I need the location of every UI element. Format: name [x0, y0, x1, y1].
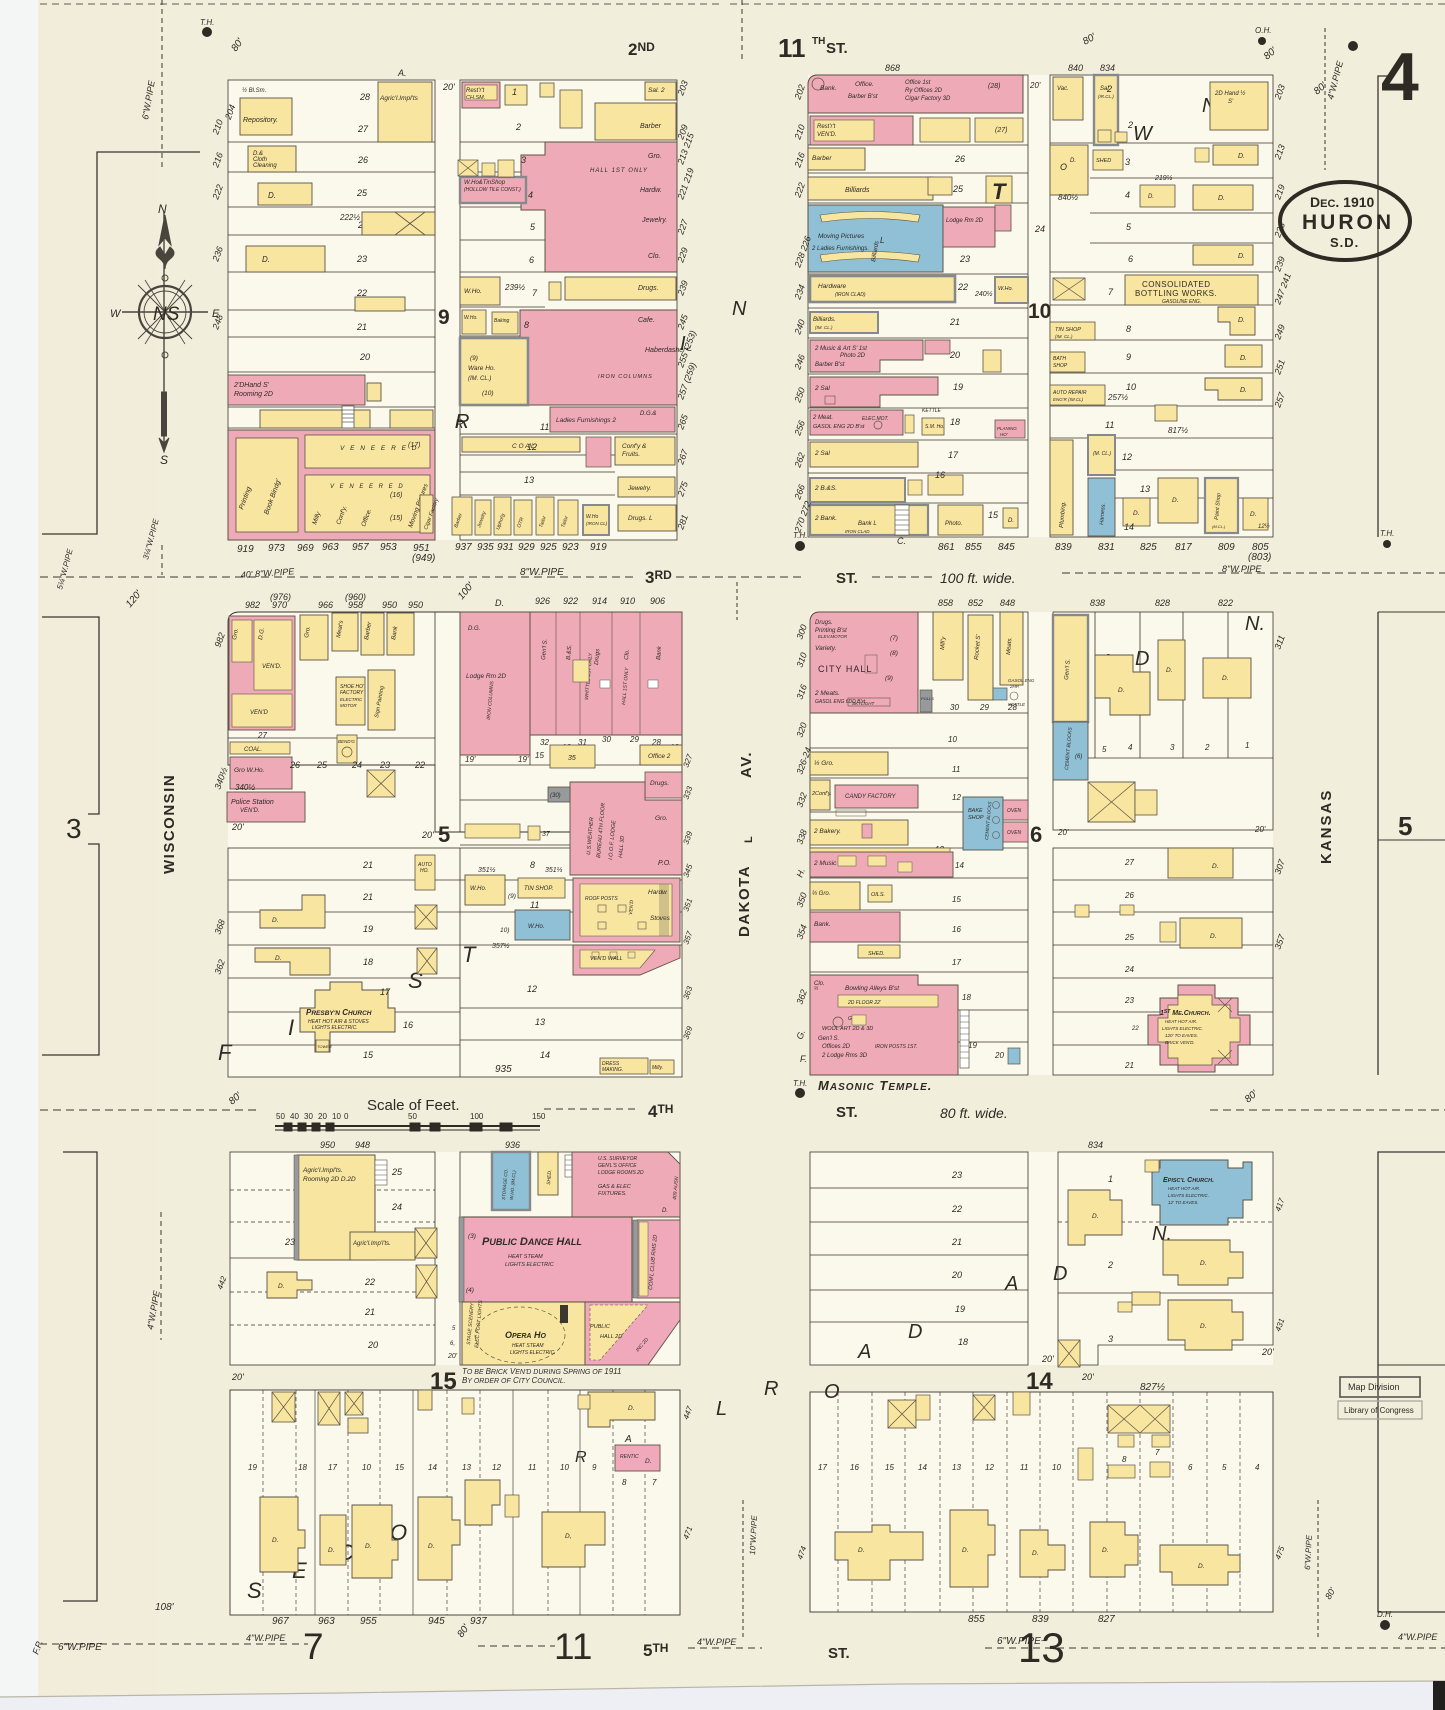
svg-text:MAKING.: MAKING. — [602, 1067, 623, 1073]
svg-text:240½: 240½ — [974, 290, 993, 298]
svg-text:ELEV.MOTOR: ELEV.MOTOR — [818, 634, 848, 639]
svg-text:25: 25 — [316, 760, 328, 770]
svg-text:S.D.: S.D. — [1330, 235, 1359, 250]
svg-text:2 Music & Art S' 1st: 2 Music & Art S' 1st — [814, 346, 867, 352]
svg-text:357½: 357½ — [492, 942, 510, 950]
svg-text:(9): (9) — [508, 893, 516, 900]
svg-text:D.: D. — [1032, 1550, 1039, 1557]
svg-text:8: 8 — [524, 320, 529, 330]
svg-text:D.: D. — [275, 955, 282, 962]
svg-text:13: 13 — [462, 1463, 471, 1472]
svg-text:20': 20' — [421, 830, 434, 840]
svg-text:GAS & ELEC: GAS & ELEC — [598, 1184, 631, 1190]
svg-text:21: 21 — [1124, 1061, 1134, 1070]
svg-text:20': 20' — [1029, 81, 1041, 90]
svg-text:868: 868 — [885, 63, 900, 73]
svg-text:340½: 340½ — [235, 783, 255, 792]
svg-text:25: 25 — [1124, 933, 1134, 942]
svg-text:855: 855 — [965, 542, 982, 553]
svg-text:V E N E E R E D: V E N E E R E D — [340, 445, 418, 452]
svg-text:2 Lodge Rms 3D: 2 Lodge Rms 3D — [821, 1053, 868, 1059]
svg-text:TH: TH — [812, 36, 825, 47]
svg-text:16: 16 — [935, 470, 945, 480]
svg-text:950: 950 — [320, 1140, 335, 1150]
svg-text:Rooming 2D D.2D: Rooming 2D D.2D — [303, 1176, 356, 1183]
svg-text:ENG'R (IM.CL): ENG'R (IM.CL) — [1053, 397, 1084, 402]
svg-text:Bank L: Bank L — [858, 521, 877, 527]
svg-text:D.: D. — [428, 1543, 435, 1550]
svg-text:P.O.: P.O. — [658, 860, 671, 867]
svg-text:(27): (27) — [995, 127, 1007, 134]
svg-text:D.: D. — [662, 1208, 668, 1214]
svg-text:O: O — [1060, 162, 1067, 172]
svg-text:(9): (9) — [885, 675, 893, 682]
svg-text:16: 16 — [850, 1463, 859, 1472]
svg-text:13: 13 — [535, 1017, 545, 1027]
svg-text:14: 14 — [955, 861, 964, 870]
svg-text:Barber: Barber — [812, 155, 832, 162]
svg-text:Bank.: Bank. — [814, 921, 831, 928]
svg-text:831: 831 — [1098, 542, 1115, 553]
svg-text:Repository.: Repository. — [243, 117, 278, 124]
svg-text:R: R — [455, 417, 464, 431]
svg-text:W.Ho.: W.Ho. — [470, 886, 486, 892]
svg-text:936: 936 — [505, 1140, 520, 1150]
svg-text:21: 21 — [364, 1307, 375, 1317]
svg-text:Hardware: Hardware — [818, 283, 847, 290]
svg-text:950: 950 — [382, 600, 397, 610]
svg-text:10: 10 — [1126, 382, 1136, 392]
svg-text:(10): (10) — [482, 390, 494, 397]
svg-text:⅓ Gro.: ⅓ Gro. — [814, 760, 834, 767]
svg-text:840: 840 — [1068, 63, 1083, 73]
svg-text:D.G.&: D.G.& — [640, 411, 656, 417]
svg-text:28: 28 — [359, 92, 370, 102]
svg-text:SHED.: SHED. — [868, 951, 885, 957]
svg-text:22: 22 — [957, 282, 968, 292]
svg-text:2 Sal: 2 Sal — [814, 385, 830, 392]
svg-text:10: 10 — [1052, 1463, 1061, 1472]
svg-text:(M.CL.): (M.CL.) — [1212, 524, 1226, 529]
svg-text:834: 834 — [1088, 1140, 1103, 1150]
svg-text:D.H.: D.H. — [1377, 1610, 1393, 1619]
svg-text:Drugs.: Drugs. — [650, 780, 669, 787]
svg-text:Drugs.: Drugs. — [815, 620, 833, 626]
svg-text:Jewelry.: Jewelry. — [627, 485, 652, 492]
svg-text:2'DHand S': 2'DHand S' — [233, 382, 270, 389]
svg-text:12: 12 — [527, 984, 537, 994]
svg-text:858: 858 — [938, 598, 953, 608]
svg-text:W.Ho.: W.Ho. — [528, 924, 544, 930]
svg-text:Ware Ho.: Ware Ho. — [468, 365, 496, 372]
svg-text:TOWER: TOWER — [317, 1044, 332, 1049]
svg-text:14: 14 — [428, 1463, 437, 1472]
svg-text:973: 973 — [268, 543, 285, 554]
svg-text:(3): (3) — [468, 1233, 476, 1240]
svg-text:N.: N. — [1245, 613, 1265, 635]
svg-text:SHOP: SHOP — [968, 815, 984, 821]
svg-text:25: 25 — [391, 1167, 403, 1177]
svg-text:969: 969 — [297, 543, 314, 554]
svg-text:18: 18 — [950, 417, 960, 427]
svg-text:W.Ho: W.Ho — [586, 514, 599, 520]
svg-text:DAKOTA: DAKOTA — [736, 865, 753, 937]
svg-text:931: 931 — [497, 542, 514, 553]
svg-text:11: 11 — [554, 1626, 592, 1667]
svg-text:D.: D. — [1218, 195, 1225, 202]
svg-text:21: 21 — [949, 317, 960, 327]
svg-text:10: 10 — [560, 1463, 569, 1472]
svg-text:C.: C. — [897, 536, 906, 546]
svg-text:257½: 257½ — [1107, 393, 1128, 402]
svg-text:1: 1 — [1108, 1174, 1113, 1184]
svg-text:D.: D. — [858, 1547, 865, 1554]
svg-text:D.: D. — [1070, 158, 1076, 164]
svg-text:18: 18 — [298, 1463, 307, 1472]
svg-text:D.: D. — [1102, 1547, 1109, 1554]
svg-text:(M. CL.): (M. CL.) — [1093, 451, 1111, 457]
svg-text:19': 19' — [465, 755, 476, 764]
svg-text:4"W.PIPE: 4"W.PIPE — [1398, 1632, 1438, 1642]
svg-text:BATH: BATH — [1053, 356, 1066, 362]
svg-text:17: 17 — [380, 987, 391, 997]
svg-text:12½: 12½ — [1258, 523, 1270, 530]
svg-text:20': 20' — [1261, 1347, 1274, 1357]
svg-text:23: 23 — [284, 1237, 295, 1247]
svg-text:T: T — [992, 179, 1007, 204]
svg-text:23: 23 — [1124, 996, 1134, 1005]
svg-text:Agric'l.Impl'ts.: Agric'l.Impl'ts. — [302, 1167, 343, 1174]
svg-text:D.: D. — [1212, 863, 1219, 870]
svg-text:HALL 2D: HALL 2D — [600, 1334, 622, 1340]
svg-text:Cigar Factory 3D: Cigar Factory 3D — [905, 96, 951, 102]
svg-text:D.: D. — [962, 1547, 969, 1554]
svg-text:948: 948 — [355, 1140, 370, 1150]
svg-text:9: 9 — [1126, 352, 1131, 362]
svg-text:SKYLIGHT: SKYLIGHT — [852, 701, 876, 706]
svg-text:(16): (16) — [390, 492, 402, 499]
svg-text:923: 923 — [562, 542, 579, 553]
svg-text:817: 817 — [1175, 542, 1192, 553]
svg-text:6: 6 — [529, 255, 534, 265]
svg-text:TIN SHOP: TIN SHOP — [1055, 327, 1081, 333]
svg-text:21: 21 — [362, 860, 373, 870]
svg-text:(8): (8) — [890, 650, 898, 657]
svg-text:937: 937 — [470, 1616, 487, 1627]
svg-text:Gro.: Gro. — [655, 815, 668, 822]
svg-text:D.: D. — [272, 917, 279, 924]
svg-text:11: 11 — [528, 1463, 536, 1472]
svg-text:17: 17 — [952, 958, 961, 967]
svg-text:1: 1 — [1245, 741, 1249, 750]
svg-text:929: 929 — [518, 542, 535, 553]
svg-text:19: 19 — [968, 1041, 977, 1050]
svg-text:(IR.CL.): (IR.CL.) — [1098, 94, 1114, 99]
svg-text:SHOP: SHOP — [1053, 363, 1068, 369]
svg-text:I: I — [288, 1015, 294, 1040]
svg-text:SHED: SHED — [1096, 158, 1111, 164]
svg-text:AV.: AV. — [738, 751, 755, 778]
svg-text:2HP.: 2HP. — [1009, 684, 1019, 689]
svg-text:2D Hand ½: 2D Hand ½ — [1214, 90, 1245, 97]
svg-text:2D FLOOR 22': 2D FLOOR 22' — [847, 1000, 882, 1006]
svg-text:S: S — [160, 453, 168, 467]
svg-text:Gen'l S.: Gen'l S. — [818, 1036, 839, 1042]
svg-text:TIN SHOP.: TIN SHOP. — [524, 886, 553, 892]
svg-text:OVEN: OVEN — [1007, 830, 1022, 836]
svg-text:D.: D. — [1148, 194, 1154, 200]
svg-text:19: 19 — [363, 924, 373, 934]
svg-text:D.: D. — [495, 598, 504, 608]
svg-text:Fruits.: Fruits. — [622, 451, 640, 458]
svg-text:(803): (803) — [1248, 552, 1271, 563]
svg-text:967: 967 — [272, 1616, 289, 1627]
svg-text:14: 14 — [540, 1050, 550, 1060]
svg-text:ST.: ST. — [828, 1645, 850, 1662]
svg-text:919: 919 — [590, 542, 607, 553]
svg-text:845: 845 — [998, 542, 1015, 553]
svg-text:8: 8 — [1122, 1455, 1127, 1464]
svg-text:VEN'D WALL: VEN'D WALL — [590, 956, 623, 962]
svg-text:(IM. CL.): (IM. CL.) — [1055, 334, 1073, 339]
svg-text:919: 919 — [237, 544, 254, 555]
svg-text:Barber B'st: Barber B'st — [848, 94, 878, 100]
svg-text:7: 7 — [1155, 1448, 1160, 1457]
svg-text:KANSAS: KANSAS — [1318, 789, 1335, 864]
svg-text:T.H.: T.H. — [200, 18, 214, 27]
svg-text:D: D — [1135, 648, 1149, 670]
svg-text:(30): (30) — [550, 793, 561, 799]
svg-text:2: 2 — [1204, 743, 1210, 752]
svg-text:A: A — [857, 1341, 871, 1363]
svg-text:FIXTURES.: FIXTURES. — [598, 1191, 627, 1197]
svg-text:D.: D. — [1222, 675, 1229, 682]
svg-text:4"W.PIPE: 4"W.PIPE — [246, 1633, 286, 1643]
svg-text:T.H.: T.H. — [1380, 529, 1394, 538]
svg-text:24: 24 — [391, 1202, 402, 1212]
svg-text:23: 23 — [959, 254, 970, 264]
svg-text:Agric'l.Imp'l'ts.: Agric'l.Imp'l'ts. — [352, 1241, 391, 1247]
svg-text:Office.: Office. — [855, 81, 874, 88]
svg-text:D.: D. — [1238, 317, 1245, 324]
svg-text:20': 20' — [1041, 1354, 1054, 1364]
svg-text:N: N — [158, 202, 167, 216]
svg-text:14: 14 — [918, 1463, 927, 1472]
svg-text:BOTTLING WORKS.: BOTTLING WORKS. — [1135, 289, 1217, 298]
svg-text:Stoves: Stoves — [650, 915, 671, 922]
svg-text:W: W — [1133, 123, 1154, 145]
svg-text:13: 13 — [524, 475, 534, 485]
svg-text:15: 15 — [363, 1050, 374, 1060]
svg-text:20': 20' — [1254, 825, 1266, 834]
svg-text:A: A — [1004, 1273, 1018, 1295]
svg-text:Rest'r't: Rest'r't — [466, 88, 485, 94]
svg-text:9: 9 — [438, 306, 450, 329]
svg-text:T: T — [462, 942, 477, 967]
svg-text:120' TO EAVES.: 120' TO EAVES. — [1165, 1033, 1198, 1038]
svg-text:D.: D. — [1008, 518, 1014, 524]
svg-text:3: 3 — [1125, 157, 1130, 167]
svg-text:848: 848 — [1000, 598, 1015, 608]
svg-text:22: 22 — [951, 1204, 962, 1214]
svg-text:239½: 239½ — [504, 283, 525, 292]
svg-text:(IRON CLAD): (IRON CLAD) — [835, 292, 866, 298]
svg-text:HO.: HO. — [420, 868, 429, 874]
svg-text:5: 5 — [438, 822, 450, 847]
svg-text:21: 21 — [951, 1237, 962, 1247]
svg-text:22: 22 — [414, 760, 425, 770]
svg-text:CITY HALL: CITY HALL — [818, 664, 872, 674]
svg-text:0: 0 — [344, 1112, 349, 1121]
svg-text:W.Ho&TinShop: W.Ho&TinShop — [464, 180, 506, 186]
svg-text:13: 13 — [952, 1463, 961, 1472]
svg-text:O.H.: O.H. — [1255, 26, 1271, 35]
svg-text:855: 855 — [968, 1614, 985, 1625]
svg-text:5: 5 — [1222, 1463, 1227, 1472]
svg-text:19: 19 — [248, 1463, 257, 1472]
svg-text:Billiards: Billiards — [845, 187, 870, 194]
svg-text:2 Sal: 2 Sal — [814, 450, 830, 457]
svg-text:D.: D. — [645, 1458, 652, 1465]
svg-text:11: 11 — [1020, 1463, 1028, 1472]
svg-text:Gro W.Ho.: Gro W.Ho. — [234, 767, 265, 774]
svg-text:BY ORDER OF CITY COUNCIL.: BY ORDER OF CITY COUNCIL. — [462, 1376, 566, 1385]
svg-text:1: 1 — [512, 87, 517, 97]
svg-text:D.: D. — [328, 1547, 335, 1554]
svg-text:CANDY FACTORY: CANDY FACTORY — [845, 794, 896, 800]
svg-text:23: 23 — [379, 760, 390, 770]
svg-text:D.: D. — [1240, 355, 1247, 362]
svg-text:ST.: ST. — [836, 570, 858, 587]
svg-text:BAKE: BAKE — [968, 808, 983, 814]
svg-text:OILS.: OILS. — [871, 892, 885, 898]
svg-text:R: R — [764, 1378, 778, 1400]
svg-text:D.: D. — [278, 1283, 285, 1290]
svg-text:150: 150 — [532, 1112, 546, 1121]
svg-text:(28): (28) — [988, 83, 1000, 90]
svg-text:22: 22 — [364, 1277, 375, 1287]
svg-text:27: 27 — [357, 124, 369, 134]
svg-text:19': 19' — [518, 755, 529, 764]
svg-text:2 B.&S.: 2 B.&S. — [814, 485, 837, 492]
svg-text:219½: 219½ — [1154, 174, 1173, 182]
svg-text:8: 8 — [1126, 324, 1131, 334]
svg-text:LIGHTS ELECTRIC.: LIGHTS ELECTRIC. — [510, 1350, 556, 1356]
svg-text:W.Ho.: W.Ho. — [464, 288, 482, 295]
svg-text:7: 7 — [652, 1478, 657, 1487]
svg-text:LIGHTS ELECTRIC.: LIGHTS ELECTRIC. — [312, 1025, 358, 1031]
svg-text:Rooming 2D: Rooming 2D — [234, 391, 273, 398]
svg-text:COAL.: COAL. — [244, 747, 262, 753]
svg-text:Cafe.: Cafe. — [638, 317, 655, 324]
svg-text:W: W — [110, 308, 122, 320]
svg-text:Drugs. L: Drugs. L — [628, 515, 653, 522]
svg-text:8"W.PIPE: 8"W.PIPE — [1222, 564, 1262, 574]
svg-text:827½: 827½ — [1140, 1382, 1166, 1393]
svg-text:6: 6 — [1030, 822, 1042, 847]
svg-text:F: F — [218, 1040, 233, 1065]
svg-text:Billiards.: Billiards. — [813, 317, 836, 323]
svg-text:10: 10 — [362, 1463, 371, 1472]
svg-text:10: 10 — [948, 735, 957, 744]
svg-text:6"W.PIPE: 6"W.PIPE — [1303, 1534, 1314, 1570]
svg-text:VEN'D.: VEN'D. — [262, 664, 281, 670]
svg-text:N: N — [732, 298, 747, 320]
svg-text:Clo.: Clo. — [624, 649, 631, 660]
svg-text:S: S — [247, 1578, 262, 1603]
svg-text:817½: 817½ — [1168, 426, 1188, 435]
svg-text:VEN'D: VEN'D — [250, 710, 268, 716]
svg-text:19: 19 — [955, 1304, 965, 1314]
svg-text:25: 25 — [952, 184, 964, 194]
svg-text:24: 24 — [351, 760, 362, 770]
svg-text:W.Ho.: W.Ho. — [464, 315, 478, 321]
svg-text:958: 958 — [348, 600, 363, 610]
svg-text:2 Bakery.: 2 Bakery. — [813, 828, 841, 835]
svg-text:825: 825 — [1140, 542, 1157, 553]
svg-text:2 Meat.: 2 Meat. — [812, 415, 833, 421]
svg-text:20': 20' — [447, 1353, 458, 1360]
svg-text:809: 809 — [1218, 542, 1235, 553]
svg-text:827: 827 — [1098, 1614, 1115, 1625]
svg-text:3: 3 — [521, 155, 526, 165]
svg-text:Cleaning: Cleaning — [253, 163, 277, 169]
svg-text:10: 10 — [332, 1112, 341, 1121]
svg-text:6,: 6, — [450, 1341, 455, 1347]
svg-text:30: 30 — [304, 1112, 313, 1121]
svg-text:D.: D. — [1240, 387, 1247, 394]
svg-text:D.: D. — [1210, 933, 1217, 940]
svg-text:8"W.PIPE: 8"W.PIPE — [520, 567, 564, 578]
svg-text:LIGHTS ELECTRIC.: LIGHTS ELECTRIC. — [1168, 1193, 1209, 1198]
svg-text:15: 15 — [988, 510, 999, 520]
svg-text:Moving Pictures: Moving Pictures — [818, 233, 865, 240]
svg-text:8: 8 — [530, 860, 535, 870]
svg-text:100 ft. wide.: 100 ft. wide. — [940, 570, 1016, 586]
svg-text:ROOF POSTS: ROOF POSTS — [585, 896, 618, 902]
svg-text:222½: 222½ — [339, 213, 360, 222]
svg-text:5: 5 — [1398, 811, 1412, 841]
svg-text:17: 17 — [818, 1463, 827, 1472]
svg-text:20': 20' — [1081, 1372, 1094, 1382]
svg-text:Bank: Bank — [656, 645, 663, 660]
svg-text:15: 15 — [535, 751, 544, 760]
svg-text:966: 966 — [318, 600, 333, 610]
svg-text:925: 925 — [540, 542, 557, 553]
svg-text:POLLS: POLLS — [921, 696, 934, 701]
svg-text:PUBLIC DANCE HALL: PUBLIC DANCE HALL — [482, 1236, 582, 1248]
svg-text:30: 30 — [950, 703, 959, 712]
svg-text:2: 2 — [1127, 120, 1133, 130]
svg-text:4: 4 — [1125, 190, 1130, 200]
svg-text:D.: D. — [1198, 1563, 1205, 1570]
svg-text:D.: D. — [1166, 667, 1173, 674]
svg-text:27: 27 — [1124, 858, 1134, 867]
svg-text:S': S' — [1228, 99, 1234, 105]
svg-text:2 Meats.: 2 Meats. — [814, 690, 840, 697]
svg-text:Offices 2D: Offices 2D — [822, 1044, 851, 1050]
svg-text:⅓: ⅓ — [814, 986, 818, 992]
svg-text:Clo.: Clo. — [648, 253, 661, 260]
svg-text:Library of Congress: Library of Congress — [1344, 1406, 1414, 1415]
svg-text:828: 828 — [1155, 598, 1170, 608]
svg-text:20: 20 — [367, 1340, 378, 1350]
svg-text:22: 22 — [1131, 1026, 1139, 1032]
svg-text:D,: D, — [565, 1533, 572, 1540]
svg-text:11: 11 — [952, 765, 960, 774]
svg-text:HEAT STEAM: HEAT STEAM — [508, 1254, 543, 1260]
svg-text:(9): (9) — [470, 355, 478, 362]
